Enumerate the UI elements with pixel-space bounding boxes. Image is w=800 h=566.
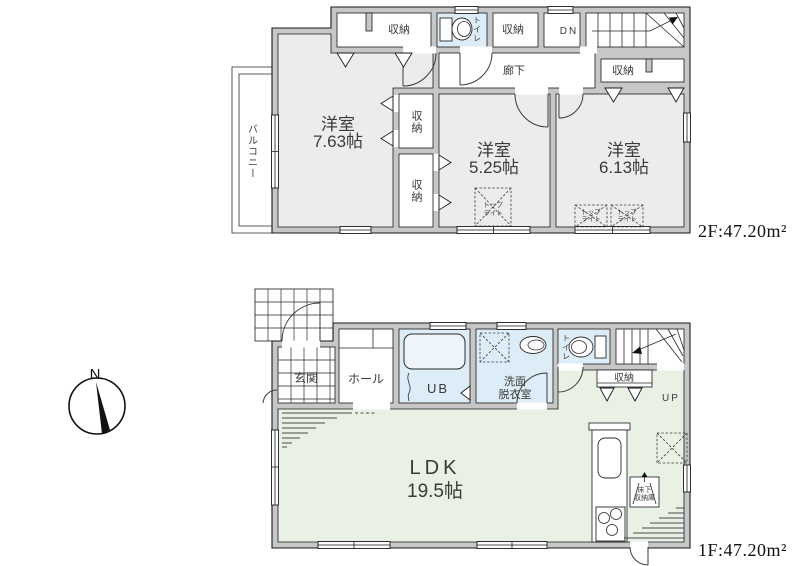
closet-2f-top-left [337,13,431,47]
skylight-label-1b: ライト [483,209,503,217]
toilet-label-2f: トイレ [473,16,482,43]
corridor-label: 廊下 [503,63,525,77]
area-label-2f: 2F:47.20m² [698,221,787,241]
compass-needle [96,382,110,434]
toilet-fixture-2f [440,18,472,41]
closet-label-top-right: 収納 [502,23,524,36]
room-center-size: 5.25帖 [469,158,519,177]
floor-1f: 床下 収納庫 玄関 ホー [255,289,787,565]
skylight-label-3a: トップ [617,208,637,216]
skylight-label-3b: ライト [617,215,637,223]
floor-plan-canvas: トップ ライト トップ ライト トップ ライト 収納 トイレ 収納 DN 廊下 … [0,0,800,566]
stairs-1f [616,329,684,364]
ldk-size: 19.5帖 [407,480,463,502]
skylight-label-2a: トップ [581,208,601,216]
closet-label-mid-upper: 収納 [410,110,423,134]
washroom-label-2: 脱衣室 [499,387,532,401]
washbasin [520,337,546,354]
stairs-up-label: UP [662,393,680,404]
stairs-2f [586,13,684,47]
hall-room [339,329,393,403]
underfloor-label-1: 床下 [638,485,652,494]
porch [255,289,333,341]
closet-label-east: 収納 [612,64,634,77]
kitchen-counter [589,423,630,542]
closet-label-mid-lower: 収納 [410,179,423,203]
unit-bath-label: UB [427,381,449,396]
closet-partition-east [646,59,652,72]
stairs-down-label: DN [560,26,578,37]
closet-label-1f: 収納 [614,371,634,384]
ldk-name: LDK [410,457,461,479]
compass: N [69,366,125,434]
area-label-1f: 1F:47.20m² [698,540,787,560]
toilet-fixture-1f [569,336,606,358]
washroom-label-1: 洗面 [504,375,526,388]
room-east-size: 6.13帖 [599,158,649,177]
underfloor-storage: 床下 収納庫 [630,472,659,507]
room-west-size: 7.63帖 [313,132,363,151]
entrance-label: 玄関 [294,370,318,385]
hall-label: ホール [348,372,384,386]
balcony-label: バルコニー [246,124,258,179]
closet-partition [366,13,372,31]
kitchen-sink [598,438,621,478]
underfloor-label-2: 収納庫 [634,493,655,502]
skylight-label-1a: トップ [483,201,503,209]
floor-plan-page: トップ ライト トップ ライト トップ ライト 収納 トイレ 収納 DN 廊下 … [0,0,800,566]
skylight-label-2b: ライト [581,215,601,223]
toilet-label-1f: トイレ [562,334,571,361]
compass-north-label: N [90,366,101,383]
floor-2f: トップ ライト トップ ライト トップ ライト 収納 トイレ 収納 DN 廊下 … [232,7,787,242]
closet-label-top-left: 収納 [388,23,410,36]
